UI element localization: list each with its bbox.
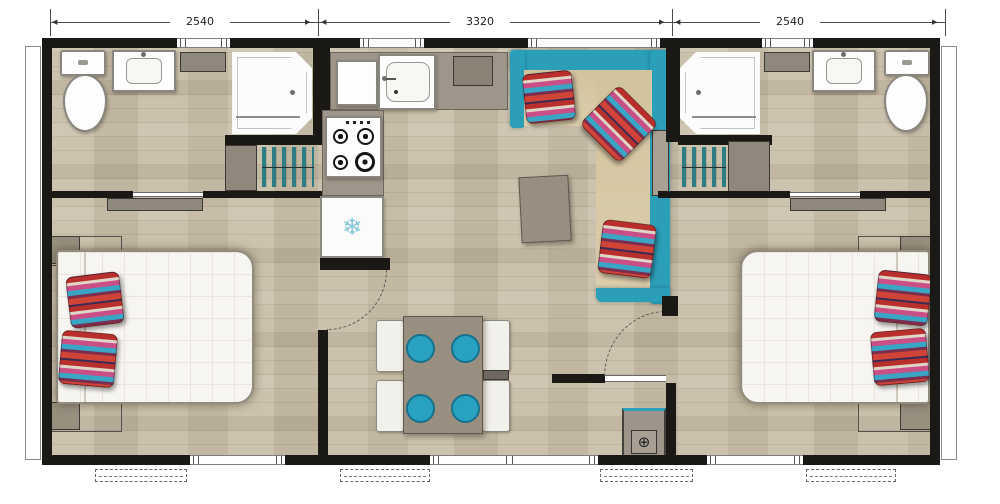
window <box>177 38 230 48</box>
dimension-label-center: 3320 <box>450 15 510 29</box>
entry-step <box>340 469 430 482</box>
left-chassis-strip <box>25 46 41 460</box>
window <box>762 38 813 48</box>
dimension-tick <box>50 9 51 36</box>
patio-door <box>430 455 598 465</box>
dimension-tick <box>318 9 319 36</box>
dim-arrow-icon: ▶ <box>305 18 310 26</box>
dim-arrow-icon: ◀ <box>321 18 326 26</box>
floor-plan: ◀ ▶ ◀ ▶ ◀ ▶ 2540 3320 2540 ❄ <box>0 0 1000 504</box>
dimension-label-right: 2540 <box>760 15 820 29</box>
entry-step <box>600 469 693 482</box>
dim-arrow-icon: ◀ <box>52 18 57 26</box>
dim-arrow-icon: ▶ <box>932 18 937 26</box>
dim-arrow-icon: ▶ <box>659 18 664 26</box>
dimension-tick <box>672 9 673 36</box>
window <box>190 455 285 465</box>
window <box>707 455 803 465</box>
dim-arrow-icon: ◀ <box>675 18 680 26</box>
door-panel-divider <box>506 456 513 464</box>
entry-step <box>806 469 896 482</box>
window <box>528 38 660 48</box>
dimension-tick <box>945 9 946 36</box>
dimension-label-left: 2540 <box>170 15 230 29</box>
entry-step <box>95 469 187 482</box>
window <box>360 38 424 48</box>
right-chassis-strip <box>941 46 957 460</box>
exterior-wall <box>42 38 940 465</box>
